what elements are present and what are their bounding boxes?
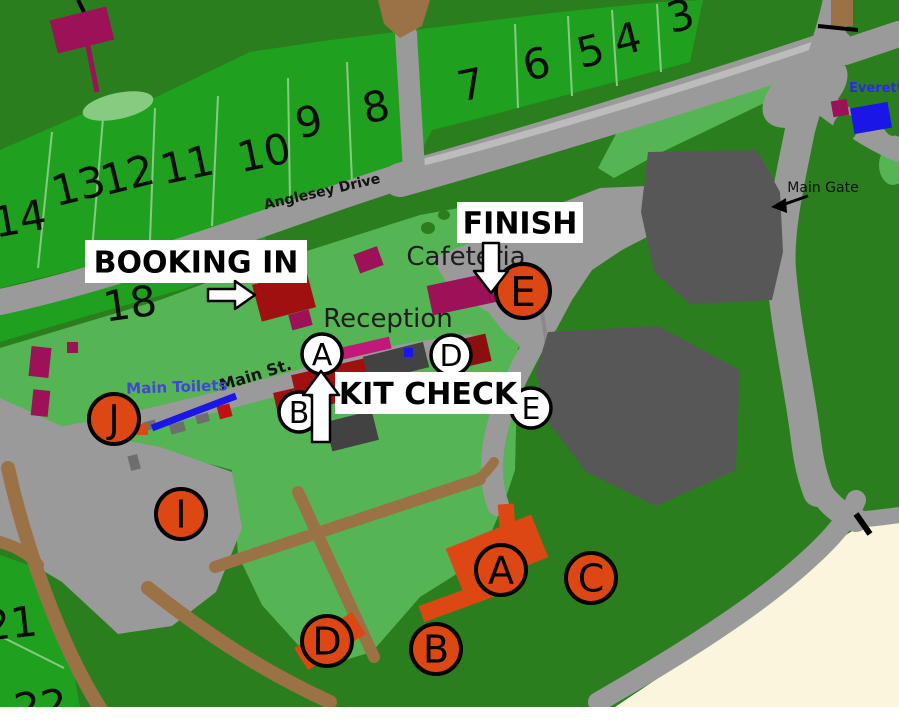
site-map-svg: CafeteriaReceptionAnglesey DriveMain St.… — [0, 0, 899, 726]
marker-letter: J — [106, 398, 119, 442]
marker-white-A: A — [302, 334, 342, 374]
blue-marker-square — [404, 348, 413, 357]
brown-patch-topright — [831, 0, 853, 26]
marker-letter: B — [423, 628, 449, 672]
booking-in-overlay: BOOKING IN — [85, 240, 307, 283]
tree-dot — [421, 222, 435, 234]
everett-label: Everett — [849, 81, 899, 96]
marker-letter: C — [578, 557, 605, 601]
small-building — [67, 342, 78, 353]
marker-orange-I: I — [156, 489, 206, 539]
marker-letter: B — [289, 396, 310, 431]
reception-label: Reception — [323, 304, 453, 334]
kit-check-overlay: KIT CHECK — [335, 372, 521, 414]
field-18-number: 18 — [100, 276, 160, 332]
marker-letter: A — [488, 549, 514, 593]
everett-outbuilding — [831, 99, 850, 118]
main-gate-label: Main Gate — [787, 180, 858, 196]
finish-text: FINISH — [463, 207, 578, 242]
booking-in-text: BOOKING IN — [94, 246, 299, 281]
marker-letter: D — [439, 339, 462, 374]
bottom-margin — [0, 707, 899, 726]
marker-letter: A — [312, 338, 333, 373]
marker-letter: E — [510, 268, 536, 316]
marker-letter: E — [522, 392, 541, 427]
small-building — [28, 346, 51, 378]
kit-check-text: KIT CHECK — [339, 377, 519, 412]
marker-orange-C: C — [566, 553, 616, 603]
field-14-number: 14 — [0, 190, 50, 248]
field-21-number: 21 — [0, 596, 40, 650]
north-lane — [406, 34, 414, 170]
marker-orange-A: A — [476, 545, 526, 595]
marker-letter: I — [175, 493, 186, 537]
campsite-event-map: CafeteriaReceptionAnglesey DriveMain St.… — [0, 0, 899, 726]
road-stub-topright — [845, 34, 899, 52]
marker-white-D: D — [431, 335, 471, 375]
small-building — [31, 389, 51, 417]
finish-overlay: FINISH — [457, 202, 583, 243]
marker-orange-B: B — [411, 624, 461, 674]
marker-orange-D: D — [302, 616, 352, 666]
main-toilets-label: Main Toilets — [126, 376, 228, 398]
tree-dot — [438, 210, 450, 220]
marker-letter: D — [312, 620, 341, 664]
marker-orange-J: J — [89, 394, 139, 444]
